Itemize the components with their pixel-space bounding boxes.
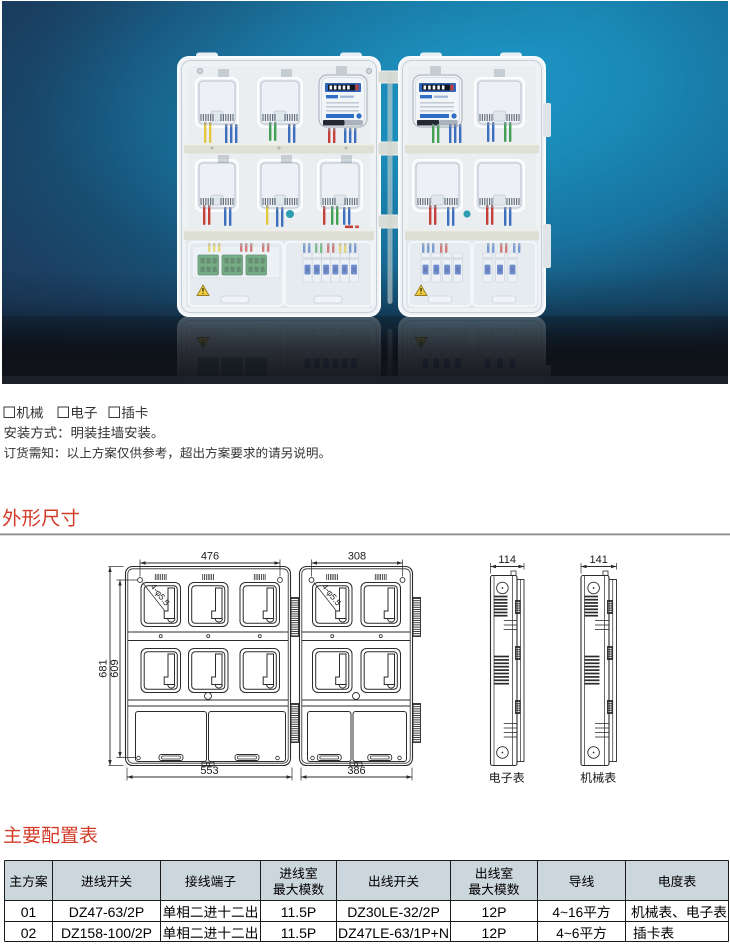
svg-text:11.5P: 11.5P xyxy=(281,904,317,920)
svg-text:609: 609 xyxy=(109,659,121,677)
svg-text:681: 681 xyxy=(98,659,110,677)
svg-text:308: 308 xyxy=(348,551,366,563)
svg-text:12P: 12P xyxy=(482,925,507,941)
svg-text:DZ47LE-63/1P+N: DZ47LE-63/1P+N xyxy=(338,925,449,941)
svg-text:DZ47-63/2P: DZ47-63/2P xyxy=(69,904,144,920)
svg-text:141: 141 xyxy=(590,554,608,566)
svg-text:DZ30LE-32/2P: DZ30LE-32/2P xyxy=(347,904,440,920)
svg-text:02: 02 xyxy=(21,925,37,941)
svg-text:12P: 12P xyxy=(482,904,507,920)
svg-text:553: 553 xyxy=(200,765,218,777)
svg-text:11.5P: 11.5P xyxy=(281,925,317,941)
svg-text:114: 114 xyxy=(498,554,516,566)
svg-text:476: 476 xyxy=(201,551,219,563)
svg-text:01: 01 xyxy=(21,904,37,920)
svg-text:386: 386 xyxy=(347,765,365,777)
svg-text:DZ158-100/2P: DZ158-100/2P xyxy=(61,925,152,941)
